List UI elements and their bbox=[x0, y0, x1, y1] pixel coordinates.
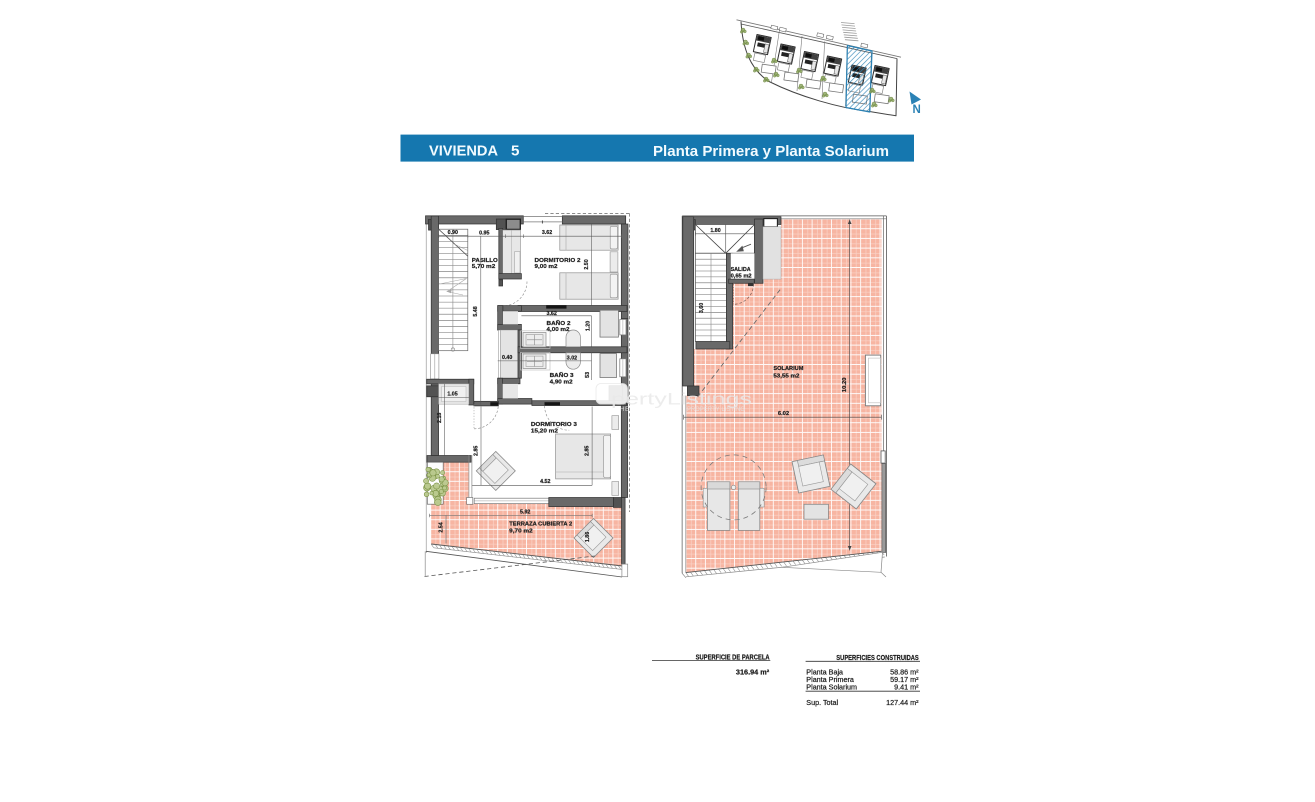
svg-text:Sup. Total: Sup. Total bbox=[806, 698, 838, 707]
svg-text:HE: HE bbox=[620, 406, 630, 413]
svg-text:DORMITORIO 2: DORMITORIO 2 bbox=[535, 258, 581, 264]
svg-text:VIVIENDA: VIVIENDA bbox=[429, 143, 498, 160]
svg-text:Planta Solarium: Planta Solarium bbox=[806, 683, 857, 692]
svg-text:0.40: 0.40 bbox=[502, 355, 512, 361]
svg-text:PROPERTY LISTING: PROPERTY LISTING bbox=[687, 406, 745, 413]
svg-text:3.62: 3.62 bbox=[547, 311, 557, 317]
svg-text:BAÑO 2: BAÑO 2 bbox=[547, 320, 571, 327]
svg-text:5.48: 5.48 bbox=[473, 306, 479, 316]
svg-text:5,70 m2: 5,70 m2 bbox=[472, 264, 496, 270]
svg-text:SOLARIUM: SOLARIUM bbox=[773, 366, 803, 372]
svg-text:4.52: 4.52 bbox=[540, 479, 550, 485]
svg-text:DORMITORIO 3: DORMITORIO 3 bbox=[531, 422, 578, 428]
svg-text:1.80: 1.80 bbox=[710, 228, 720, 234]
svg-text:6.02: 6.02 bbox=[778, 411, 789, 417]
svg-text:10.20: 10.20 bbox=[842, 378, 848, 393]
svg-text:5: 5 bbox=[511, 143, 520, 160]
svg-text:2.50: 2.50 bbox=[584, 259, 590, 269]
svg-text:3.62: 3.62 bbox=[542, 230, 552, 236]
svg-text:2.85: 2.85 bbox=[474, 446, 480, 456]
svg-text:PASILLO: PASILLO bbox=[472, 258, 499, 264]
svg-text:53,55 m2: 53,55 m2 bbox=[773, 373, 799, 379]
svg-text:9.41 m²: 9.41 m² bbox=[894, 683, 919, 692]
svg-text:TERRAZA CUBIERTA 2: TERRAZA CUBIERTA 2 bbox=[509, 522, 572, 528]
svg-text:2.18: 2.18 bbox=[437, 413, 443, 423]
svg-text:5.92: 5.92 bbox=[520, 509, 530, 515]
svg-text:Planta Primera y Planta Solari: Planta Primera y Planta Solarium bbox=[653, 144, 889, 160]
svg-text:1.20: 1.20 bbox=[585, 321, 591, 331]
svg-text:9,70 m2: 9,70 m2 bbox=[509, 529, 533, 535]
svg-text:N: N bbox=[913, 104, 921, 116]
svg-text:15,20 m2: 15,20 m2 bbox=[531, 429, 558, 435]
svg-text:4,00 m2: 4,00 m2 bbox=[547, 327, 570, 333]
svg-text:316.94 m²: 316.94 m² bbox=[736, 667, 770, 676]
svg-text:1.05: 1.05 bbox=[447, 391, 457, 397]
svg-text:2.54: 2.54 bbox=[439, 522, 445, 532]
svg-text:3,60: 3,60 bbox=[699, 303, 705, 313]
svg-text:0.90: 0.90 bbox=[448, 230, 458, 236]
svg-text:SUPERFICIES CONSTRUIDAS: SUPERFICIES CONSTRUIDAS bbox=[836, 653, 919, 662]
svg-text:53: 53 bbox=[585, 372, 591, 378]
svg-text:SUPERFICIE DE PARCELA: SUPERFICIE DE PARCELA bbox=[696, 652, 771, 661]
svg-text:127.44 m²: 127.44 m² bbox=[886, 698, 919, 707]
svg-text:SALIDA: SALIDA bbox=[731, 267, 751, 273]
svg-text:9,00 m2: 9,00 m2 bbox=[535, 264, 558, 270]
svg-text:4,90 m2: 4,90 m2 bbox=[550, 379, 573, 385]
svg-text:BAÑO 3: BAÑO 3 bbox=[550, 372, 575, 379]
svg-text:3.02: 3.02 bbox=[567, 355, 577, 361]
svg-text:1.86: 1.86 bbox=[585, 532, 591, 542]
svg-text:0,65 m2: 0,65 m2 bbox=[731, 274, 752, 280]
svg-text:0.95: 0.95 bbox=[479, 230, 489, 236]
svg-text:2.85: 2.85 bbox=[585, 446, 591, 456]
